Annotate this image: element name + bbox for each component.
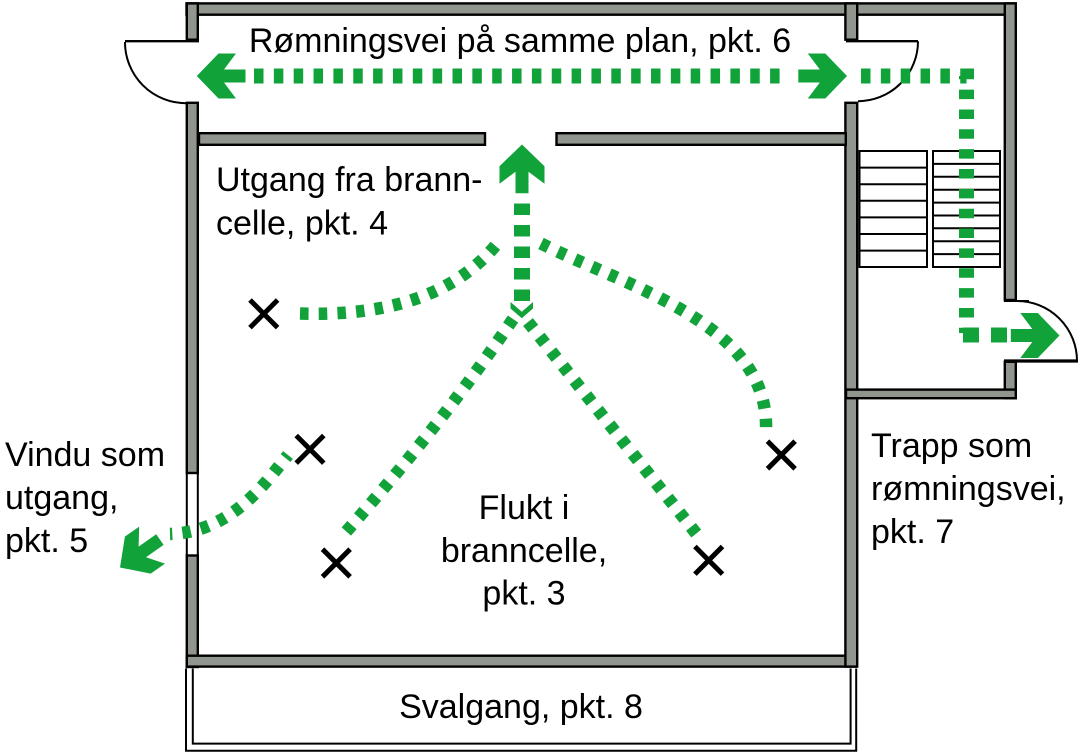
svg-text:Utgang fra brann-: Utgang fra brann- xyxy=(216,161,483,199)
svg-text:Svalgang, pkt. 8: Svalgang, pkt. 8 xyxy=(399,688,643,726)
svg-text:Rømningsvei på samme plan, pkt: Rømningsvei på samme plan, pkt. 6 xyxy=(249,22,791,60)
svg-text:utgang,: utgang, xyxy=(5,479,118,517)
svg-text:rømningsvei,: rømningsvei, xyxy=(871,470,1066,508)
svg-text:celle, pkt. 4: celle, pkt. 4 xyxy=(216,204,388,242)
svg-text:Flukt i: Flukt i xyxy=(479,489,570,527)
svg-text:pkt. 5: pkt. 5 xyxy=(5,522,88,560)
svg-text:Vindu som: Vindu som xyxy=(5,436,165,474)
svg-text:Trapp som: Trapp som xyxy=(871,427,1032,465)
svg-text:branncelle,: branncelle, xyxy=(441,532,607,570)
svg-text:pkt. 7: pkt. 7 xyxy=(871,513,954,551)
svg-text:pkt. 3: pkt. 3 xyxy=(482,575,565,613)
